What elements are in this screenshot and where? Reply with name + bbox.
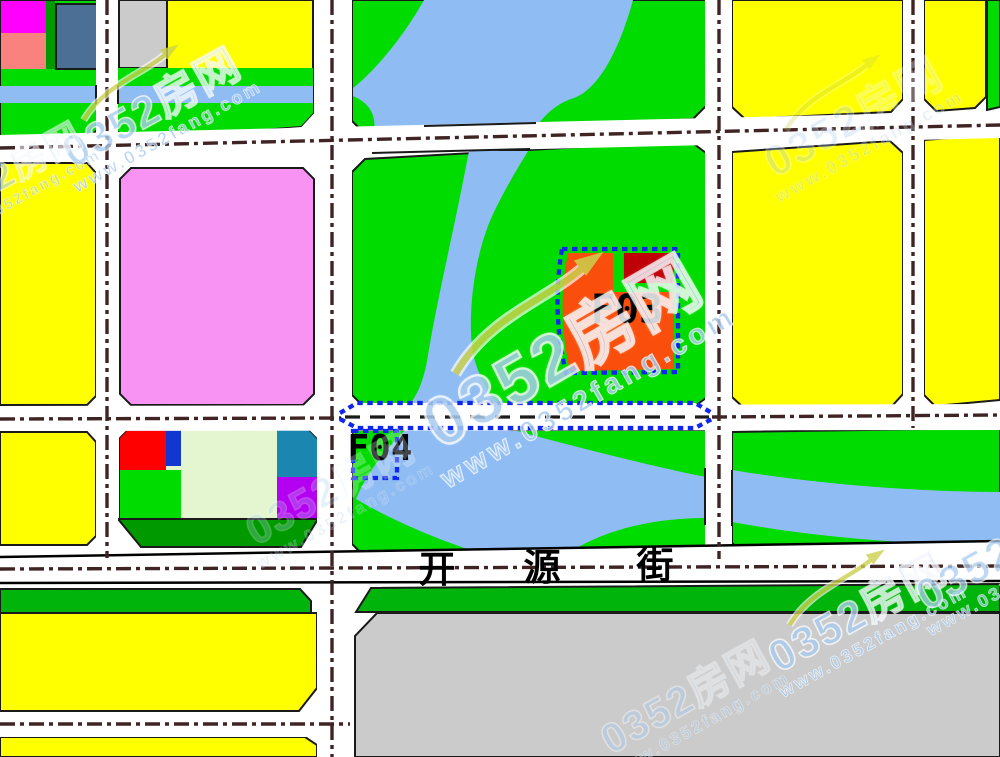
- f03-label: F03: [591, 287, 663, 333]
- parcel-left-yellow-2: [0, 432, 96, 545]
- mixed-green: [120, 470, 181, 519]
- mixed-navy: [166, 429, 181, 466]
- f03-darkred-block: [624, 253, 674, 283]
- block-slate: [56, 4, 97, 69]
- parcel-topright-yellow-1: [732, 0, 903, 119]
- parcel-mixed-block: [118, 428, 318, 547]
- parcel-topright-green-sliver: [987, 0, 1000, 110]
- block-magenta: [1, 1, 46, 33]
- area-gray: [355, 613, 1000, 757]
- canal: [0, 86, 313, 103]
- planning-map: F03 F04 开 源 街 0352房网 www.0352fang.com 03…: [0, 0, 1000, 757]
- mixed-darkgreen-trapezoid: [118, 519, 318, 547]
- street-char-2: 源: [524, 547, 561, 588]
- parcel-right-yellow-2: [924, 134, 1000, 406]
- street-char-3: 街: [636, 545, 674, 586]
- parcel-bottom-yellow: [0, 613, 317, 711]
- block-darkgreen-strip: [46, 1, 55, 69]
- mixed-teal: [277, 428, 317, 477]
- parcel-left-yellow: [0, 163, 96, 405]
- parcel-topright-yellow-2: [924, 0, 986, 111]
- street-char-1: 开: [419, 549, 456, 590]
- parcel-pink: [120, 168, 314, 405]
- map-canvas: F03 F04 开 源 街: [0, 0, 1000, 757]
- mixed-purple: [277, 477, 317, 519]
- road-v2: [317, 0, 352, 757]
- strip-green-left: [0, 589, 311, 613]
- block-salmon: [1, 33, 46, 69]
- parcel-right-yellow-1: [732, 141, 903, 408]
- parcel-bottom-yellow-2: [0, 737, 317, 757]
- mixed-red: [120, 428, 166, 470]
- block-gray: [119, 0, 167, 68]
- f04-label: F04: [347, 428, 412, 469]
- parcel-layer: [0, 0, 1000, 757]
